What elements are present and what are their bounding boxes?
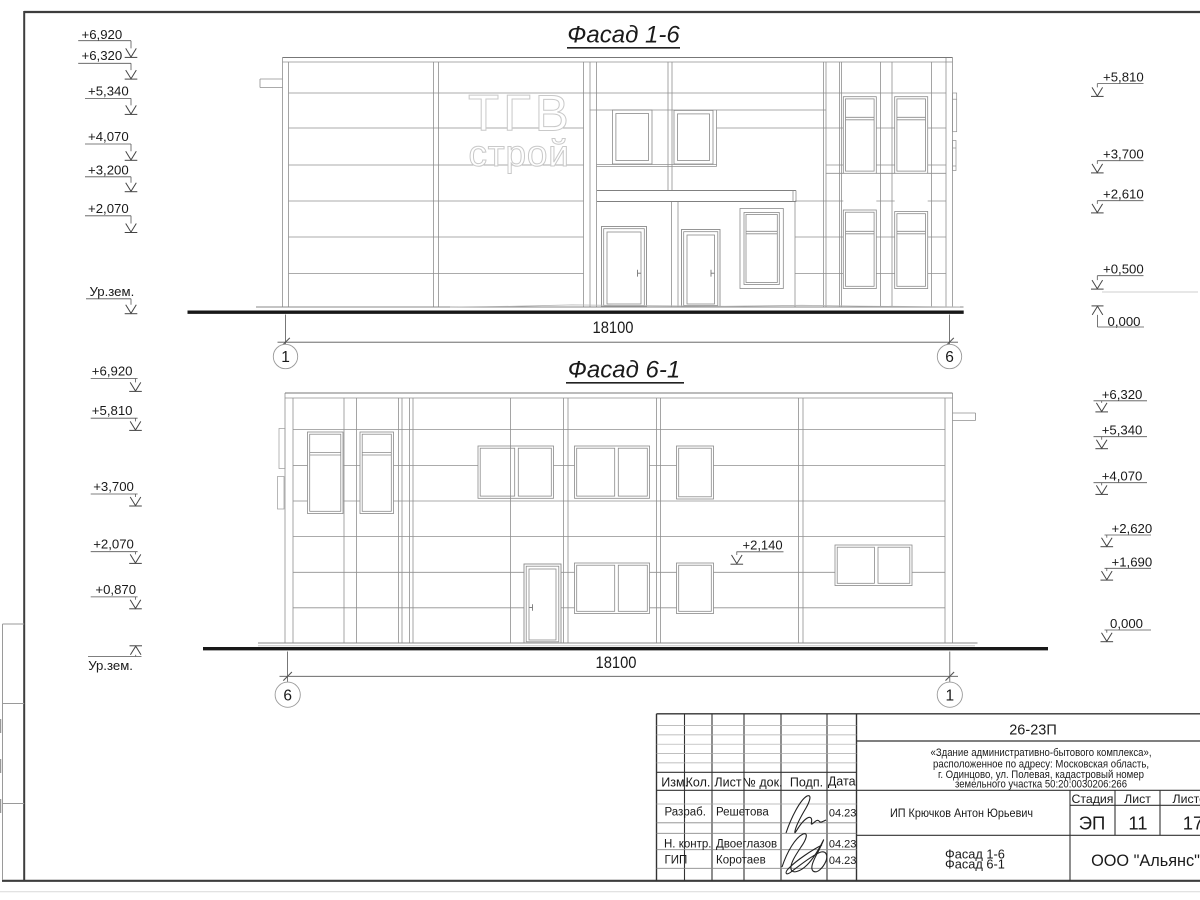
svg-text:+5,810: +5,810 bbox=[92, 403, 133, 418]
svg-text:Лист: Лист bbox=[714, 775, 741, 789]
svg-text:Листов: Листов bbox=[1173, 792, 1200, 806]
svg-text:ЭП: ЭП bbox=[1079, 813, 1106, 834]
svg-text:+4,070: +4,070 bbox=[88, 129, 129, 144]
svg-text:+5,340: +5,340 bbox=[1102, 423, 1143, 438]
svg-text:Фасад 1-6: Фасад 1-6 bbox=[567, 22, 680, 49]
svg-text:+4,070: +4,070 bbox=[1102, 469, 1143, 484]
svg-text:+6,920: +6,920 bbox=[82, 27, 123, 42]
svg-text:04.23: 04.23 bbox=[829, 839, 857, 851]
svg-text:Ур.зем.: Ур.зем. bbox=[90, 284, 135, 299]
svg-text:04.23: 04.23 bbox=[829, 855, 857, 867]
svg-text:11: 11 bbox=[1128, 813, 1147, 834]
svg-text:0,000: 0,000 bbox=[1108, 314, 1141, 329]
svg-text:Лист: Лист bbox=[1124, 792, 1151, 806]
svg-text:Кол.: Кол. bbox=[686, 775, 711, 789]
svg-text:ООО "Альянс": ООО "Альянс" bbox=[1091, 852, 1200, 870]
svg-text:+3,700: +3,700 bbox=[1103, 146, 1144, 161]
svg-text:Коротаев: Коротаев bbox=[716, 855, 766, 867]
svg-text:+2,070: +2,070 bbox=[93, 537, 134, 552]
svg-text:Стадия: Стадия bbox=[1072, 792, 1114, 806]
svg-text:Двоеглазов: Двоеглазов bbox=[716, 839, 777, 851]
svg-text:Дата: Дата bbox=[828, 774, 856, 788]
svg-text:+2,070: +2,070 bbox=[88, 201, 129, 216]
svg-text:+1,690: +1,690 bbox=[1112, 554, 1153, 569]
svg-text:Ур.зем.: Ур.зем. bbox=[88, 658, 133, 673]
svg-text:ИП Крючков Антон Юрьевич: ИП Крючков Антон Юрьевич bbox=[890, 806, 1033, 820]
svg-text:6: 6 bbox=[283, 687, 292, 704]
svg-text:Фасад 6-1: Фасад 6-1 bbox=[568, 357, 680, 384]
svg-text:26-23П: 26-23П bbox=[1009, 723, 1057, 739]
svg-text:0,000: 0,000 bbox=[1110, 616, 1143, 631]
svg-text:04.23: 04.23 bbox=[829, 808, 857, 820]
svg-text:Изм.: Изм. bbox=[661, 775, 688, 789]
svg-text:18100: 18100 bbox=[593, 318, 634, 337]
svg-text:+3,700: +3,700 bbox=[93, 479, 134, 494]
svg-text:строй: строй bbox=[469, 133, 570, 174]
svg-text:18100: 18100 bbox=[596, 653, 637, 672]
svg-text:1: 1 bbox=[945, 687, 954, 704]
svg-text:17: 17 bbox=[1183, 813, 1200, 834]
svg-text:+0,500: +0,500 bbox=[1103, 262, 1144, 277]
svg-text:+2,610: +2,610 bbox=[1103, 186, 1144, 201]
svg-text:ГИП: ГИП bbox=[665, 855, 688, 867]
svg-text:Разраб.: Разраб. bbox=[665, 807, 706, 819]
svg-text:Подп.: Подп. bbox=[790, 775, 823, 789]
svg-text:+5,340: +5,340 bbox=[88, 83, 129, 98]
svg-text:+0,870: +0,870 bbox=[95, 582, 136, 597]
svg-text:+2,620: +2,620 bbox=[1112, 521, 1153, 536]
svg-text:№ док.: № док. bbox=[742, 775, 782, 789]
svg-text:+3,200: +3,200 bbox=[88, 162, 129, 177]
svg-text:Решетова: Решетова bbox=[716, 807, 769, 819]
svg-text:Фасад 6-1: Фасад 6-1 bbox=[945, 857, 1005, 872]
svg-text:земельного участка 50:20:00302: земельного участка 50:20:0030206:266 bbox=[955, 778, 1127, 790]
svg-text:+6,920: +6,920 bbox=[92, 363, 133, 378]
svg-text:+5,810: +5,810 bbox=[1103, 70, 1144, 85]
svg-text:6: 6 bbox=[945, 349, 954, 366]
svg-text:+6,320: +6,320 bbox=[82, 48, 123, 63]
svg-text:+2,140: +2,140 bbox=[743, 538, 783, 553]
svg-text:+6,320: +6,320 bbox=[1102, 387, 1143, 402]
svg-text:1: 1 bbox=[281, 349, 290, 366]
svg-text:Н. контр.: Н. контр. bbox=[664, 839, 711, 851]
